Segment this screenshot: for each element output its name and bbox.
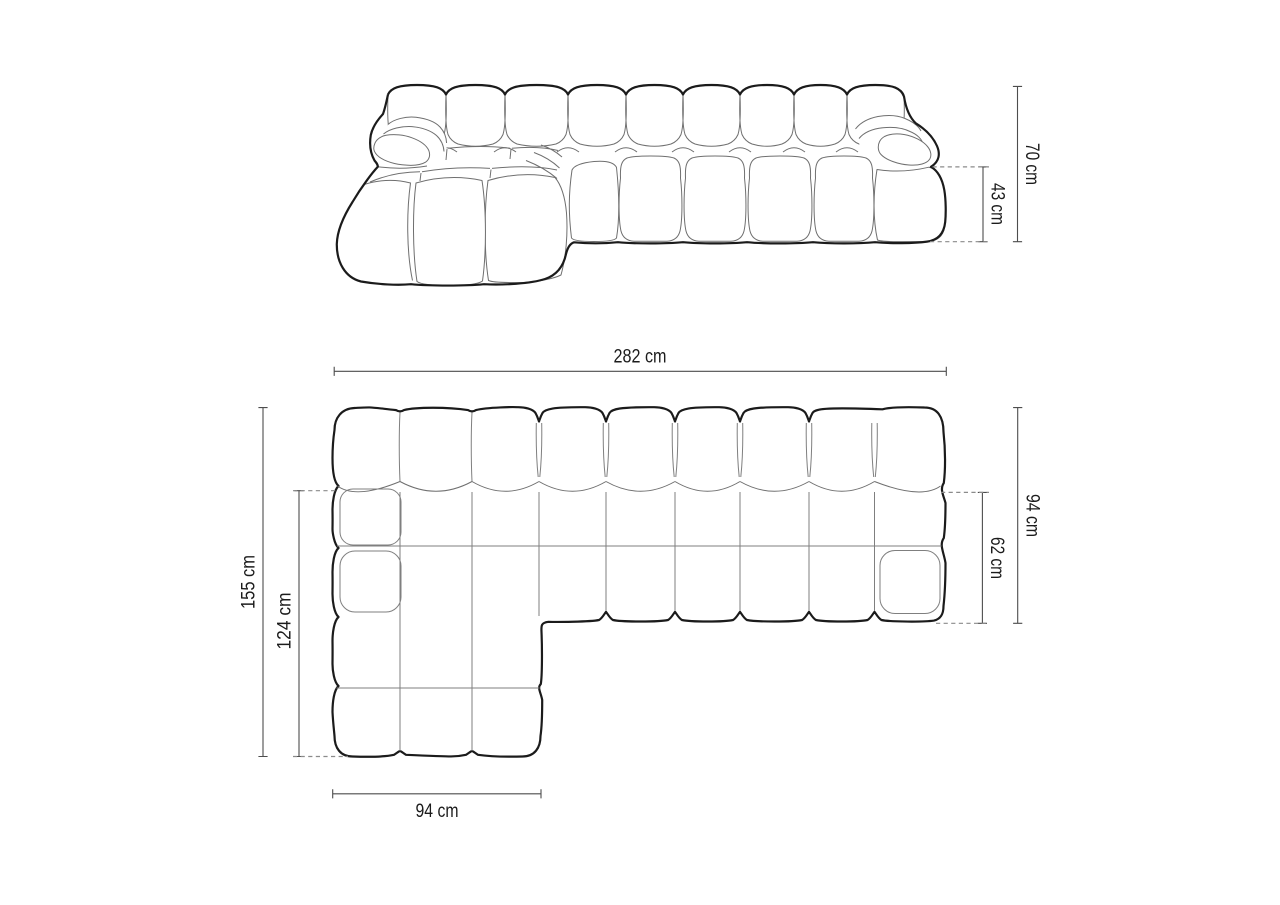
- svg-text:70 cm: 70 cm: [1021, 143, 1043, 185]
- svg-text:94 cm: 94 cm: [1022, 494, 1044, 537]
- svg-text:94 cm: 94 cm: [416, 800, 459, 822]
- svg-text:282 cm: 282 cm: [614, 346, 667, 368]
- svg-text:124 cm: 124 cm: [274, 593, 296, 650]
- svg-text:155 cm: 155 cm: [238, 555, 260, 609]
- svg-text:62 cm: 62 cm: [986, 537, 1008, 579]
- svg-text:43 cm: 43 cm: [987, 183, 1009, 225]
